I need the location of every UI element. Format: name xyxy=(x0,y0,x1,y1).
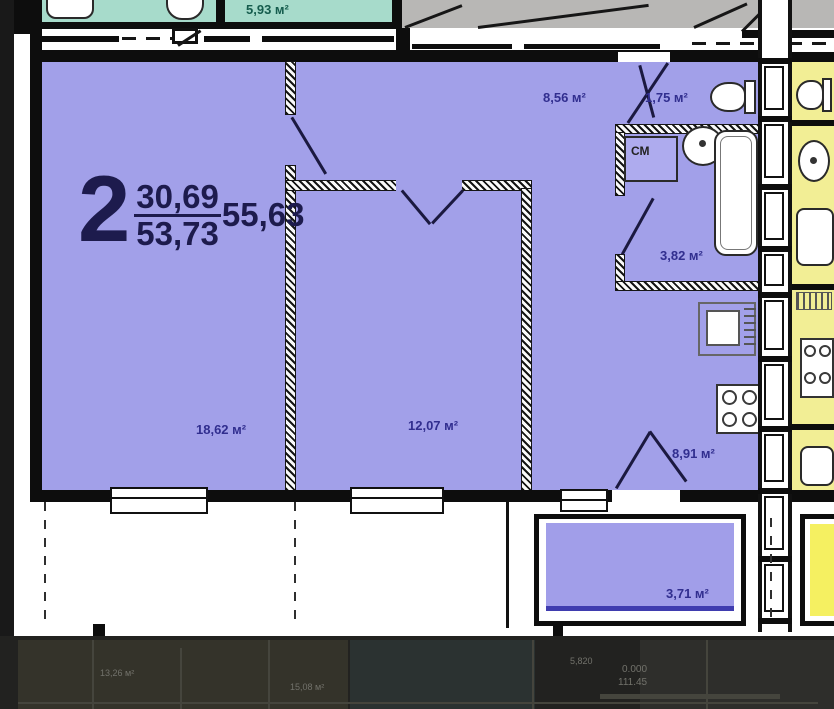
wall-segment xyxy=(33,36,119,42)
bedroom-area-label: 12,07 м² xyxy=(408,418,458,433)
washing-machine-box: СМ xyxy=(624,136,678,182)
burner-icon xyxy=(722,412,737,427)
underlay-area-value-label: 111.45 xyxy=(618,677,647,688)
underlay-wall-line xyxy=(92,640,94,709)
wall-segment xyxy=(792,120,834,126)
shaft-bar xyxy=(758,184,792,190)
underlay-wall-line xyxy=(268,640,270,709)
toilet-icon xyxy=(796,80,824,110)
partition-wall xyxy=(616,133,624,195)
projection-line xyxy=(294,502,296,628)
full-area-value: 55,63 xyxy=(222,196,305,250)
wall-segment xyxy=(30,22,402,29)
window xyxy=(110,487,208,514)
apartment-number: 2 xyxy=(78,170,130,250)
neighbor-top-area-label: 5,93 м² xyxy=(246,2,289,17)
burner-icon xyxy=(819,372,831,384)
apartment-number-block: 2 30,69 53,73 55,63 xyxy=(78,170,304,250)
faucet-dot xyxy=(699,140,706,147)
kitchen-area-label: 8,91 м² xyxy=(672,446,715,461)
area-fraction: 30,69 53,73 xyxy=(134,180,221,250)
bathroom-area-label: 3,82 м² xyxy=(660,248,703,263)
bathtub-inner xyxy=(720,136,752,250)
shaft-bar xyxy=(758,58,792,64)
shaft-bar xyxy=(758,488,792,494)
wall-segment xyxy=(792,52,834,62)
shaft-bar xyxy=(758,618,792,624)
wc-area-label: 1,75 м² xyxy=(645,90,688,105)
underlay-dimension-label: 5,820 xyxy=(570,656,593,666)
shaft-bar xyxy=(758,292,792,298)
bedroom-door-gap xyxy=(396,180,462,191)
underlay-room-block xyxy=(350,640,535,709)
wall-segment xyxy=(392,0,402,29)
hallway-area-label: 8,56 м² xyxy=(543,90,586,105)
wall-stub xyxy=(553,624,563,636)
projection-line xyxy=(770,518,772,622)
toilet-icon xyxy=(710,82,746,112)
wall-segment xyxy=(412,44,512,49)
shaft-bar xyxy=(758,556,792,562)
washing-machine-label: СМ xyxy=(631,144,650,158)
wall-segment xyxy=(524,44,660,49)
balcony-side-wall xyxy=(506,502,509,628)
burner-icon xyxy=(742,390,757,405)
projection-line xyxy=(44,502,46,628)
vent-duct xyxy=(764,300,784,350)
neighbor-balcony-floor xyxy=(810,524,834,616)
underlay-room-a-label: 13,26 м² xyxy=(100,668,134,678)
vent-duct xyxy=(764,364,784,420)
shaft-bar xyxy=(758,116,792,122)
balcony-door-gap xyxy=(612,490,680,502)
counter-hatch xyxy=(744,308,756,350)
faucet-dot xyxy=(810,157,817,164)
burner-icon xyxy=(819,345,831,357)
underlay-wall-line xyxy=(180,648,182,709)
sink-basin-icon xyxy=(800,446,834,486)
burner-icon xyxy=(742,412,757,427)
bathtub-icon xyxy=(796,208,834,266)
vent-duct xyxy=(764,66,784,110)
sink-icon xyxy=(46,0,94,19)
wall-segment xyxy=(204,36,250,42)
wall-stub xyxy=(93,624,105,636)
kitchen-counter-inner xyxy=(706,310,740,346)
image-edge-strip xyxy=(0,0,14,709)
partition-wall xyxy=(522,189,531,490)
vent-duct xyxy=(764,564,784,612)
toilet-tank-icon xyxy=(822,78,832,112)
window xyxy=(350,487,444,514)
underlay-wall-line xyxy=(600,694,780,699)
stove-icon xyxy=(800,338,834,398)
wall-segment xyxy=(792,424,834,430)
living-area-value: 30,69 xyxy=(134,180,221,217)
vent-duct xyxy=(764,434,784,482)
axis-dash-line xyxy=(122,37,174,40)
wall-segment xyxy=(792,490,834,502)
balcony-area-label: 3,71 м² xyxy=(666,586,709,601)
total-area-value: 53,73 xyxy=(134,217,221,250)
shaft-bar xyxy=(758,246,792,252)
entrance-door-gap xyxy=(618,52,670,62)
vent-duct xyxy=(764,254,784,286)
burner-icon xyxy=(804,345,816,357)
burner-icon xyxy=(804,372,816,384)
wall-segment xyxy=(216,0,225,22)
burner-icon xyxy=(722,390,737,405)
floor-plan: 5,93 м² СМ xyxy=(0,0,834,709)
vent-duct xyxy=(764,496,784,550)
vent-grille-icon xyxy=(796,292,832,310)
underlay-room-block xyxy=(18,640,348,709)
underlay-wall-line xyxy=(18,702,818,704)
partition-wall xyxy=(286,62,295,114)
partition-wall xyxy=(616,282,760,290)
underlay-room-b-label: 15,08 м² xyxy=(290,682,324,692)
window xyxy=(560,489,608,512)
stove-icon xyxy=(716,384,762,434)
apartment-left-wall xyxy=(30,0,42,502)
wall-segment xyxy=(792,284,834,290)
shaft-bar xyxy=(758,426,792,432)
living-room-area-label: 18,62 м² xyxy=(196,422,246,437)
bathtub-icon xyxy=(714,130,758,256)
shaft-bar xyxy=(758,356,792,362)
vent-duct xyxy=(764,124,784,178)
wall-segment xyxy=(262,36,394,42)
underlay-wall-line xyxy=(532,640,534,709)
vent-duct xyxy=(764,192,784,240)
underlay-elevation-label: 0.000 xyxy=(622,664,647,675)
